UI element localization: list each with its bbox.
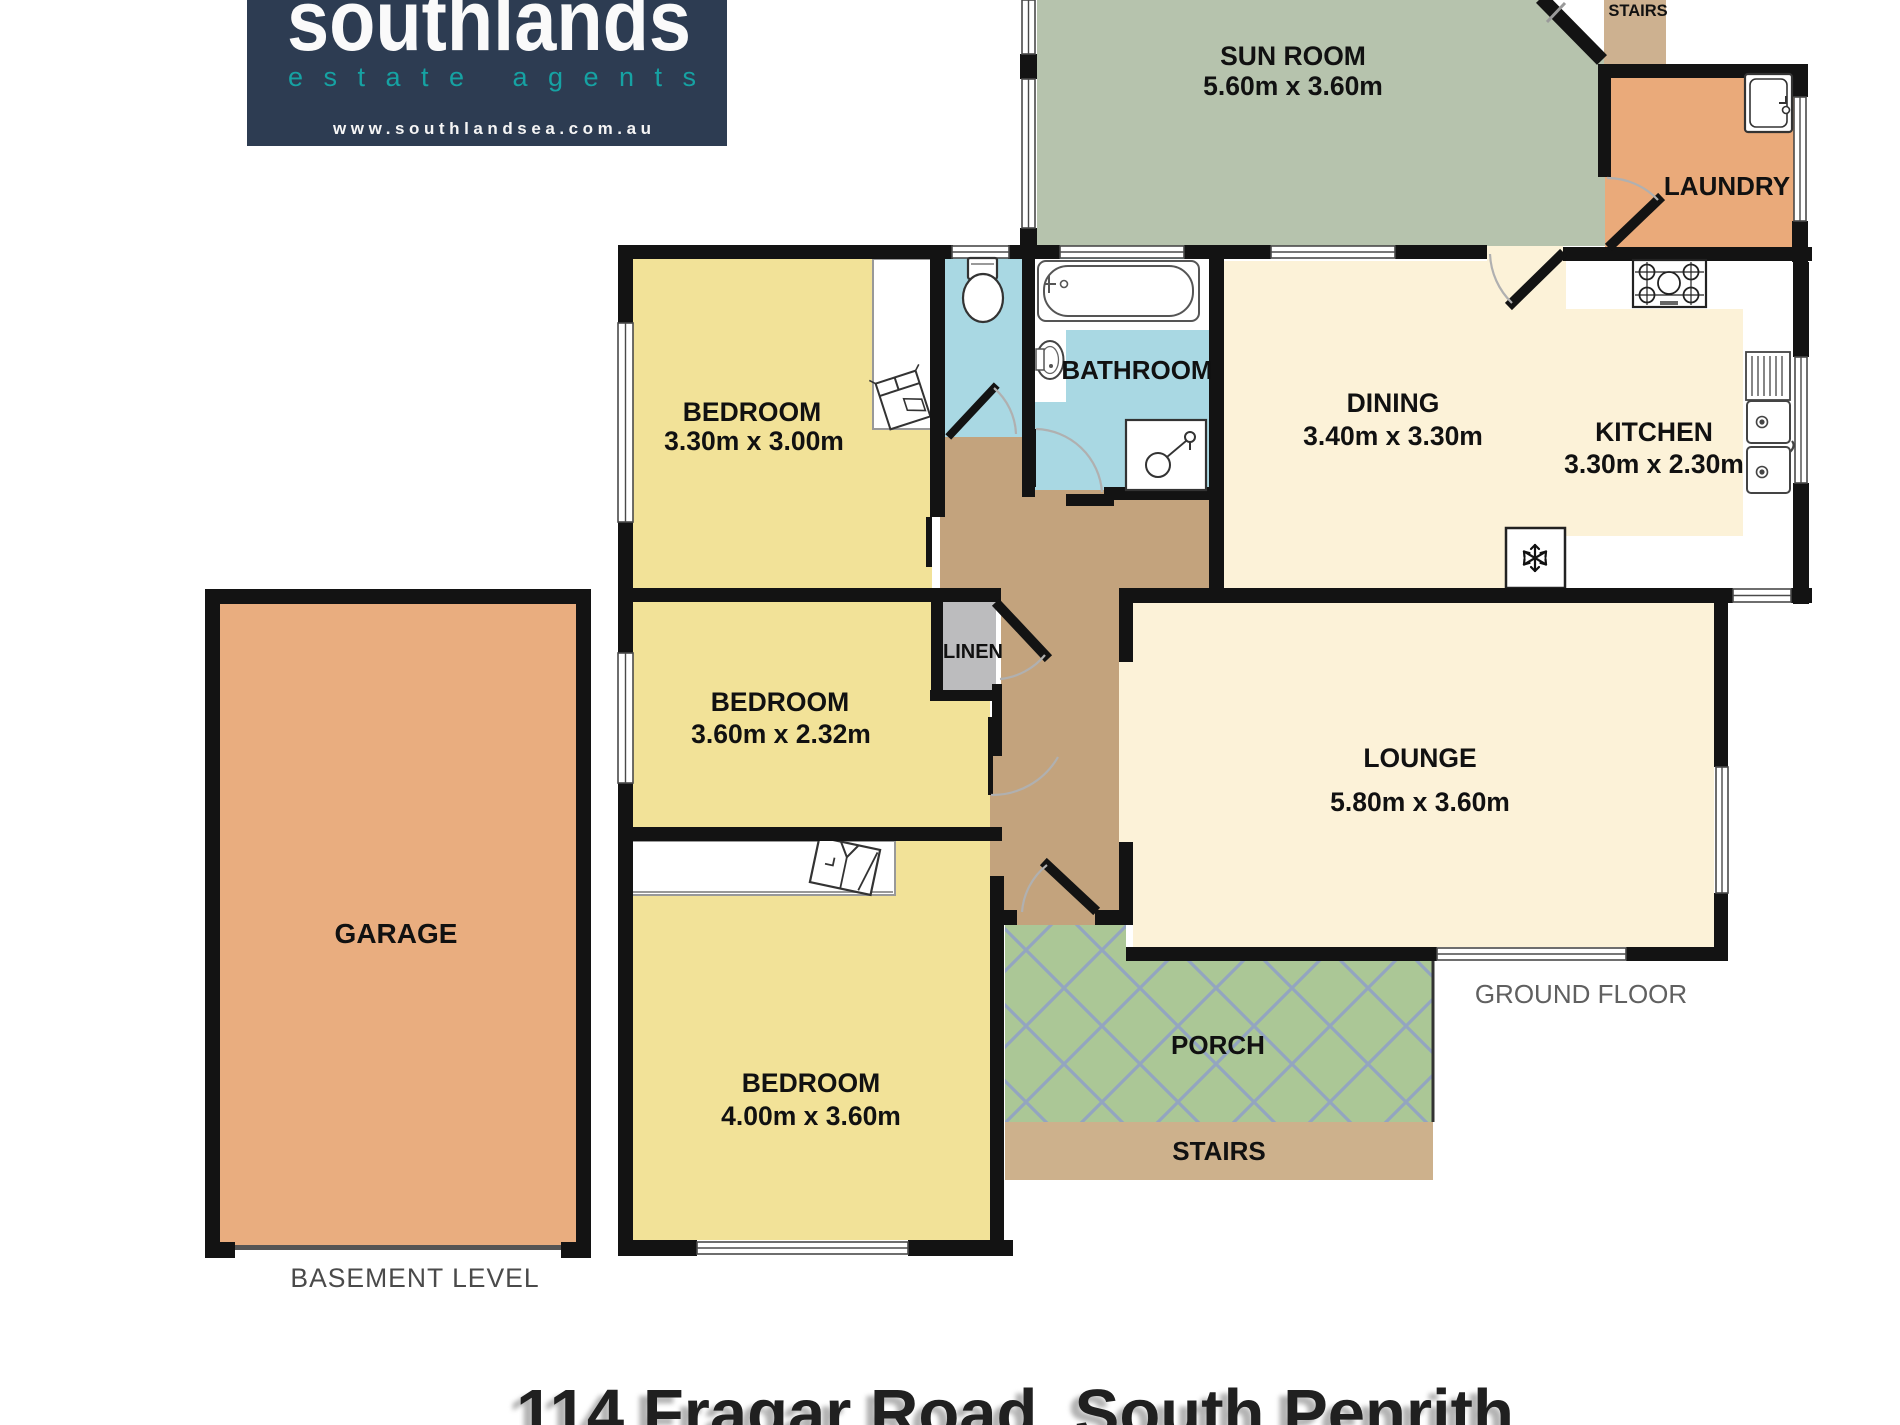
- svg-text:114 Fragar Road, South Penrith: 114 Fragar Road, South Penrith: [516, 1376, 1514, 1425]
- svg-text:5.80m x 3.60m: 5.80m x 3.60m: [1330, 787, 1510, 817]
- svg-text:PORCH: PORCH: [1171, 1030, 1265, 1060]
- svg-text:SUN ROOM: SUN ROOM: [1220, 41, 1366, 71]
- svg-text:4.00m x 3.60m: 4.00m x 3.60m: [721, 1101, 901, 1131]
- svg-text:BEDROOM: BEDROOM: [742, 1068, 880, 1098]
- svg-text:southlands: southlands: [287, 0, 691, 69]
- svg-text:3.60m x 2.32m: 3.60m x 2.32m: [691, 719, 871, 749]
- svg-text:www.southlandsea.com.au: www.southlandsea.com.au: [332, 119, 651, 138]
- svg-text:3.30m x 2.30m: 3.30m x 2.30m: [1564, 449, 1744, 479]
- svg-text:BATHROOM: BATHROOM: [1061, 355, 1212, 385]
- svg-text:LINEN: LINEN: [943, 641, 1003, 663]
- svg-text:BASEMENT LEVEL: BASEMENT LEVEL: [290, 1263, 539, 1293]
- svg-text:LOUNGE: LOUNGE: [1363, 743, 1476, 773]
- svg-text:STAIRS: STAIRS: [1172, 1136, 1265, 1166]
- svg-text:3.30m x 3.00m: 3.30m x 3.00m: [664, 426, 844, 456]
- svg-text:STAIRS: STAIRS: [1608, 2, 1667, 20]
- svg-text:GARAGE: GARAGE: [335, 918, 458, 949]
- svg-text:GROUND FLOOR: GROUND FLOOR: [1475, 979, 1687, 1009]
- svg-text:BEDROOM: BEDROOM: [711, 687, 849, 717]
- svg-text:KITCHEN: KITCHEN: [1595, 417, 1713, 447]
- svg-text:BEDROOM: BEDROOM: [683, 397, 821, 427]
- svg-text:DINING: DINING: [1347, 388, 1440, 418]
- svg-text:LAUNDRY: LAUNDRY: [1664, 171, 1790, 201]
- svg-text:3.40m x 3.30m: 3.40m x 3.30m: [1303, 421, 1483, 451]
- svg-text:5.60m x 3.60m: 5.60m x 3.60m: [1203, 71, 1383, 101]
